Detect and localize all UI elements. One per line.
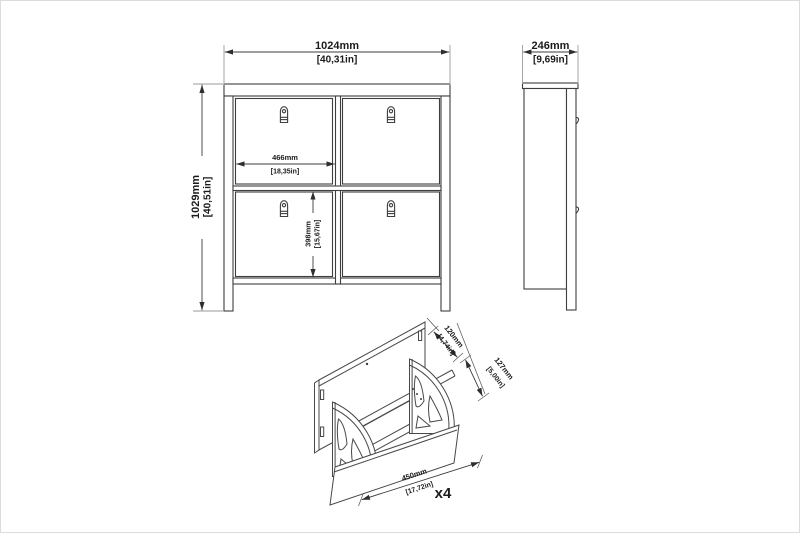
technical-drawing-page: 1024mm [40,31in] 1029mm [40,51in] 466mm … [0, 0, 800, 533]
front-top-panel [224, 84, 450, 96]
compartment-height-mm-label: 398mm [304, 221, 313, 247]
front-width-mm-label: 1024mm [315, 40, 359, 52]
side-bracket-right [410, 359, 455, 434]
compartment-height-in-label: [15,67in] [315, 220, 322, 248]
compartment-width-mm-label: 466mm [272, 153, 298, 162]
front-right-leg [441, 96, 450, 311]
side-depth-in-label: [9,69in] [533, 55, 568, 66]
front-middle-divider [233, 186, 441, 191]
front-view: 1024mm [40,31in] 1029mm [40,51in] 466mm … [190, 40, 450, 311]
handle-icon [280, 107, 287, 123]
side-front-leg [567, 89, 577, 311]
side-depth-dimension: 246mm [9,69in] [523, 40, 579, 84]
handle-icon [387, 107, 394, 123]
front-width-dimension: 1024mm [40,31in] [224, 40, 450, 85]
inner-width-in-label: [17,72in] [405, 481, 434, 496]
flap-front-dimension: 127mm [5,00in] [457, 323, 516, 401]
handle-icon [280, 201, 287, 217]
side-view: 246mm [9,69in] [523, 40, 579, 310]
detail-view: 120mm [4,74in] 127mm [5,00in] 450mm [17,… [315, 318, 516, 506]
handle-icon [387, 201, 394, 217]
hinge-tab [419, 331, 422, 341]
front-height-mm-label: 1029mm [190, 175, 202, 219]
hinge-tab [321, 390, 324, 400]
flap-top-dimension: 120mm [4,74in] [427, 318, 466, 362]
side-back-panel [524, 89, 567, 290]
front-height-dimension: 1029mm [40,51in] [190, 84, 223, 311]
shoe-cabinet-dimension-drawing: 1024mm [40,31in] 1029mm [40,51in] 466mm … [1, 1, 800, 533]
side-depth-mm-label: 246mm [532, 40, 570, 52]
quantity-label: x4 [435, 485, 452, 502]
hinge-tab [321, 427, 324, 437]
compartment-width-in-label: [18,35in] [271, 169, 299, 176]
front-width-in-label: [40,31in] [317, 55, 358, 66]
front-left-leg [224, 96, 233, 311]
side-top-panel [523, 83, 579, 89]
front-height-in-label: [40,51in] [203, 177, 214, 218]
